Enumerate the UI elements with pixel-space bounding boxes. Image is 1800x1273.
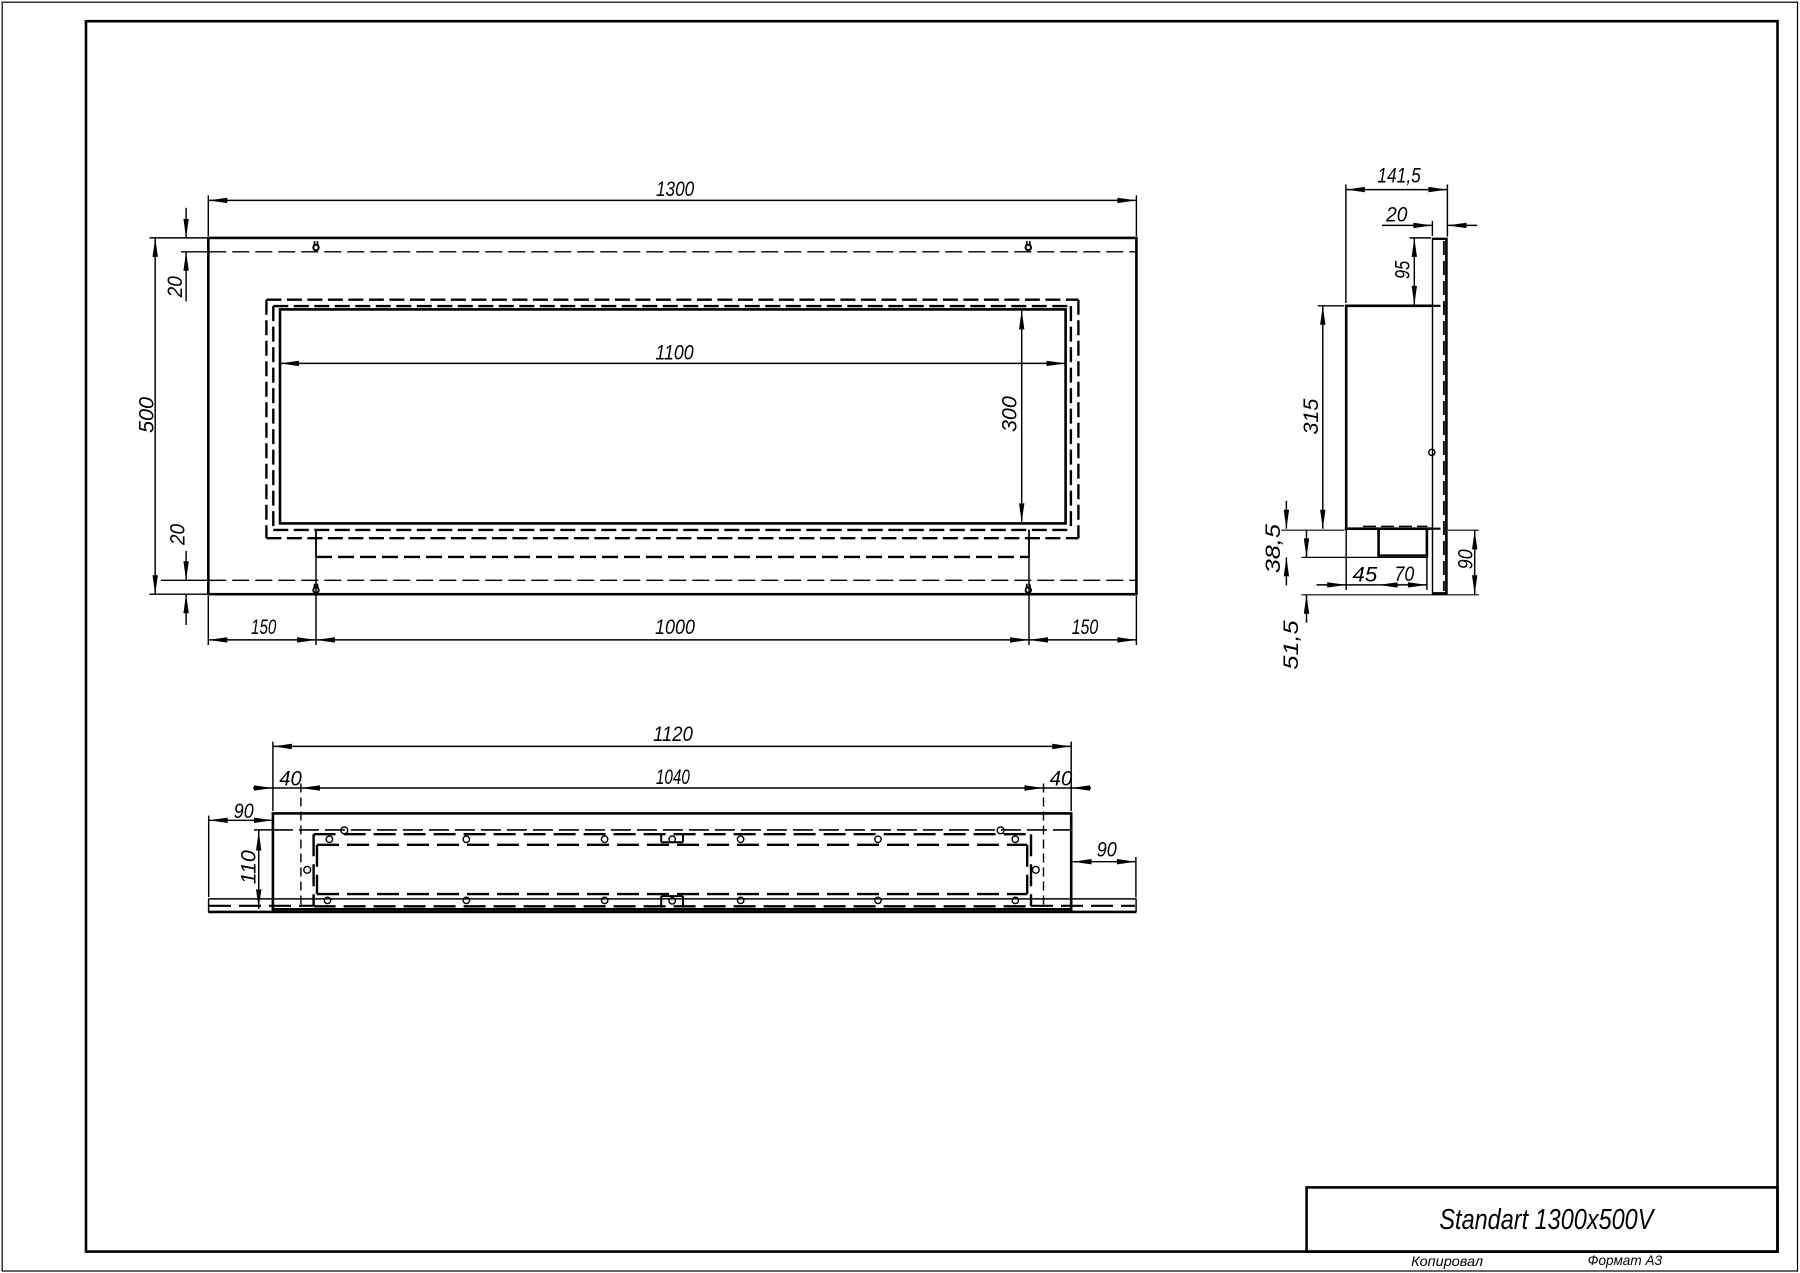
svg-text:90: 90 — [1455, 549, 1478, 569]
svg-text:1120: 1120 — [653, 723, 693, 746]
svg-text:40: 40 — [1050, 768, 1073, 791]
svg-text:20: 20 — [1385, 203, 1408, 226]
svg-text:45: 45 — [1353, 564, 1378, 587]
svg-text:315: 315 — [1300, 398, 1323, 434]
svg-text:90: 90 — [1097, 839, 1117, 862]
svg-text:95: 95 — [1392, 261, 1415, 279]
svg-text:38,5: 38,5 — [1262, 524, 1285, 574]
svg-text:20: 20 — [167, 524, 190, 546]
svg-text:141,5: 141,5 — [1377, 165, 1421, 188]
svg-text:1000: 1000 — [655, 616, 695, 639]
svg-text:51,5: 51,5 — [1280, 620, 1303, 670]
svg-text:40: 40 — [279, 768, 302, 791]
svg-text:20: 20 — [164, 276, 187, 298]
svg-text:Формат А3: Формат А3 — [1588, 1253, 1663, 1268]
svg-text:150: 150 — [251, 616, 277, 639]
svg-text:150: 150 — [1072, 616, 1099, 639]
svg-text:Копировал: Копировал — [1411, 1254, 1483, 1269]
svg-text:1100: 1100 — [655, 341, 693, 364]
svg-text:1300: 1300 — [656, 178, 694, 201]
svg-text:Standart 1300x500V: Standart 1300x500V — [1439, 1204, 1655, 1236]
svg-text:300: 300 — [999, 396, 1022, 432]
svg-text:1040: 1040 — [656, 766, 690, 789]
svg-text:70: 70 — [1395, 563, 1415, 586]
svg-text:90: 90 — [234, 800, 254, 823]
svg-text:110: 110 — [237, 850, 260, 884]
svg-text:500: 500 — [135, 397, 158, 433]
